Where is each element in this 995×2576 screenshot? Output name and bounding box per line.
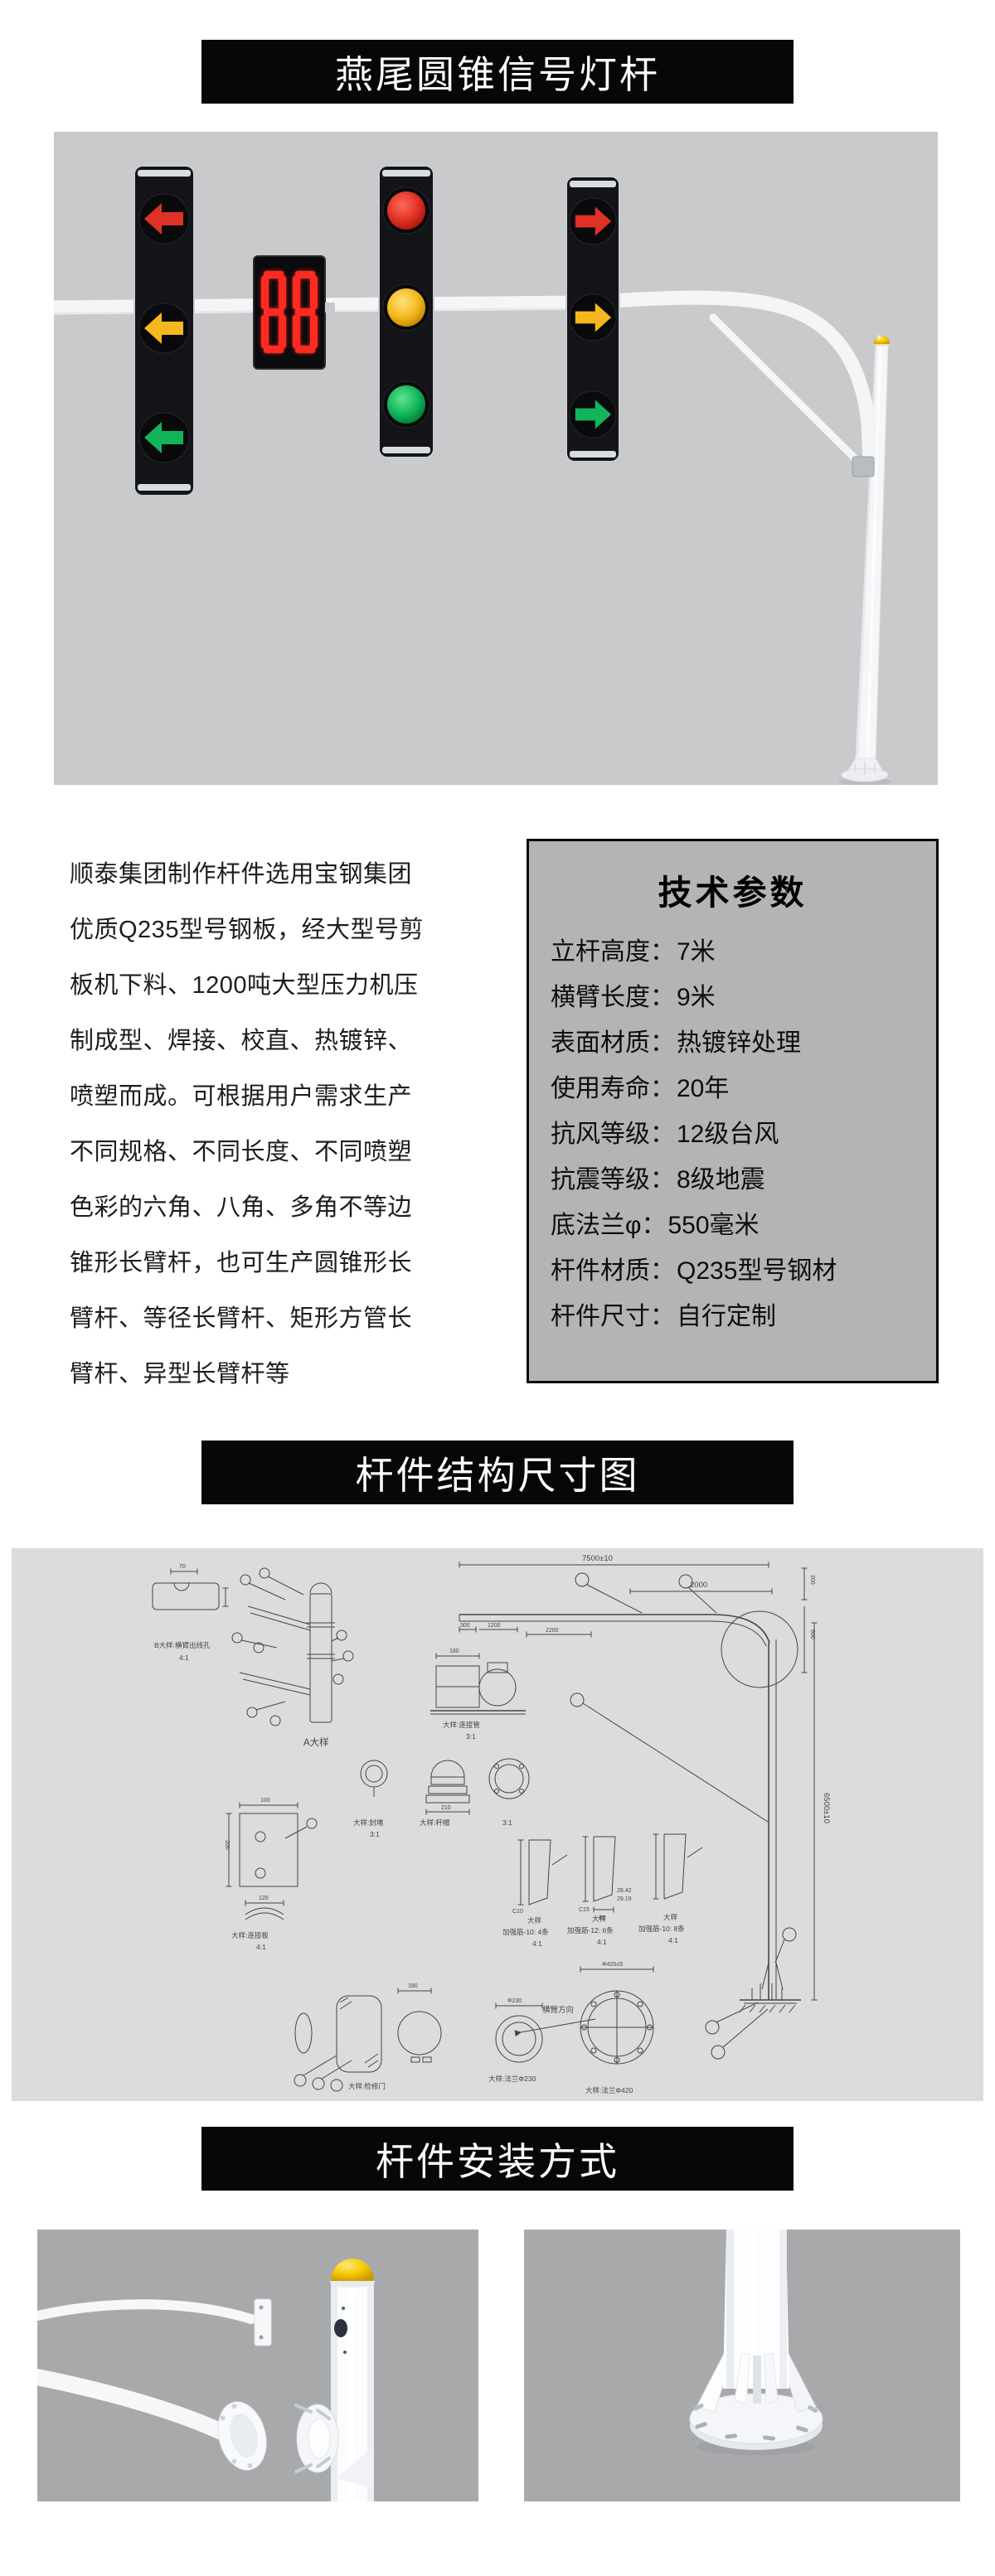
dim-1200: 1200 [488,1623,501,1629]
spec-label: 底法兰φ： [551,1212,666,1239]
banner-structure-title: 杆件结构尺寸图 [201,1441,794,1504]
label-arm-direction: 横臂方向 [542,2005,574,2015]
label-scale: 4:1 [597,1938,607,1946]
spec-label: 抗震等级： [551,1166,675,1194]
spec-value: 12级台风 [677,1121,779,1148]
install-photo-arm-svg [37,2230,478,2501]
label-scale: 4:1 [256,1943,266,1951]
install-photo-base [524,2230,960,2501]
intro-line: 优质Q235型号钢板，经大型号剪 [70,903,424,958]
intro-line: 喷塑而成。可根据用户需求生产 [70,1069,424,1125]
intro-line: 顺泰集团制作杆件选用宝钢集团 [70,847,424,903]
dim-200: 200 [809,1575,815,1585]
label-scale: 4:1 [668,1936,678,1944]
label-flange420: 大样:法兰Φ420 [585,2086,633,2094]
spec-label: 表面材质： [551,1029,675,1057]
spec-value: 550毫米 [667,1212,759,1239]
label-scale: 3:1 [370,1830,380,1838]
spec-label: 横臂长度： [551,984,675,1011]
label-b-detail: B大样:横臂出线孔 [154,1641,211,1649]
gusset-shadow [753,2356,761,2404]
product-photo-svg: 88 [54,132,938,785]
label-scale: 4:1 [179,1654,189,1662]
banner-structure-title-text: 杆件结构尺寸图 [356,1445,640,1500]
structure-drawing-svg: 7500±10 2000 300 1200 2200 200 [12,1548,983,2101]
spec-row-arm-length: 横臂长度：9米 [529,975,936,1020]
intro-line: 色彩的六角、八角、多角不等边 [70,1180,424,1236]
dim-70: 70 [179,1564,186,1570]
label-scale: 4:1 [532,1939,542,1948]
dim-210: 210 [441,1805,451,1811]
label-conn-tube: 大样:连接管 [443,1721,480,1729]
dim-120: 120 [259,1896,269,1901]
cad-door: 180 大样:检修门 [294,1983,441,2091]
label-scale: 3:1 [502,1818,512,1827]
dim-300: 300 [460,1623,470,1629]
label-rib2: 加强筋-12: 6条 [567,1926,614,1934]
dim-flange230: Φ230 [507,1998,522,2004]
intro-line: 臂杆、异型长臂杆等 [70,1347,424,1402]
product-photo: 88 [54,132,938,785]
cad-ribs: 80 C10 C15 28.42 29.19 大样 加强筋-10: 4条 4:1… [502,1834,702,1948]
intro-line: 制成型、焊接、校直、热镀锌、 [70,1014,424,1069]
label-a-detail: A大样 [303,1736,329,1748]
label-flange230: 大样:法兰Φ230 [488,2075,536,2083]
specs-box: 技术参数 立杆高度：7米 横臂长度：9米 表面材质：热镀锌处理 使用寿命：20年… [527,839,939,1383]
dim-100: 100 [260,1798,270,1804]
label-detail: 大样 [663,1913,678,1921]
arm-pole-bracket [852,457,874,477]
cad-conn-plate: 200 100 120 大样:连接板 4:1 [224,1798,317,1951]
label-cap: 大样:杆帽 [420,1818,449,1827]
spec-value: 7米 [677,938,716,966]
spec-label: 杆件材质： [551,1257,675,1285]
dim-height: 6500±10 [822,1793,831,1823]
label-detail: 大样 [527,1916,542,1925]
dim-200: 200 [224,1840,230,1850]
page: 燕尾圆锥信号灯杆 [0,0,995,2576]
traffic-light-right-arrows [566,177,619,462]
cad-conn-tube: 180 大样:连接管 3:1 [430,1649,526,1741]
banner-product-title: 燕尾圆锥信号灯杆 [201,40,794,104]
spec-row-pole-height: 立杆高度：7米 [529,929,936,975]
spec-value: 20年 [677,1075,729,1102]
label-detail: 大样 [592,1915,607,1923]
install-photo-base-svg [524,2230,960,2501]
intro-paragraph: 顺泰集团制作杆件选用宝钢集团 优质Q235型号钢板，经大型号剪 板机下料、120… [70,847,424,1402]
spec-label: 立杆高度： [551,938,675,966]
spec-row-material: 杆件材质：Q235型号钢材 [529,1248,936,1294]
label-door: 大样:检修门 [348,2082,386,2090]
pole-section [330,2259,375,2501]
traffic-light-circles [379,166,434,458]
spec-row-lifespan: 使用寿命：20年 [529,1066,936,1111]
spec-value: 自行定制 [677,1303,776,1330]
structure-drawing: 7500±10 2000 300 1200 2200 200 [12,1548,983,2101]
cad-flanges: 横臂方向 Φ420±5 大样:法兰Φ420 Φ230 大样:法兰Φ230 [488,1962,653,2094]
spec-label: 使用寿命： [551,1075,675,1102]
intro-line: 锥形长臂杆，也可生产圆锥形长 [70,1236,424,1291]
intro-line: 板机下料、1200吨大型压力机压 [70,958,424,1014]
traffic-light-left-arrows [134,166,194,496]
banner-install-title: 杆件安装方式 [201,2127,794,2191]
countdown-bracket [325,303,335,312]
dim-total-arm: 7500±10 [582,1554,613,1563]
amber-light [387,288,425,327]
cad-elevation: 7500±10 2000 300 1200 2200 200 [459,1554,831,2059]
red-light [387,191,425,230]
cad-a-detail: A大样 [232,1568,353,1748]
dim-180: 180 [408,1983,418,1989]
dim-2200: 2200 [546,1628,559,1634]
spec-value: 8级地震 [677,1166,765,1194]
cad-b-detail: 70 B大样:横臂出线孔 4:1 [153,1564,226,1662]
dim-2842: 28.42 [617,1888,632,1894]
spec-label: 杆件尺寸： [551,1303,675,1330]
label-plug: 大样:封堵 [353,1818,384,1827]
spec-row-surface: 表面材质：热镀锌处理 [529,1020,936,1066]
spec-value: 9米 [677,984,716,1011]
dim-flange420: Φ420±5 [602,1962,623,1968]
install-photo-arm [37,2230,478,2501]
spec-row-wind: 抗风等级：12级台风 [529,1111,936,1157]
spec-row-quake: 抗震等级：8级地震 [529,1157,936,1203]
mount-flange [296,2404,338,2472]
label-conn-plate: 大样:连接板 [231,1931,269,1939]
cad-mid-details: 大样:封堵 3:1 210 大样:杆帽 3:1 [353,1759,529,1838]
intro-line: 臂杆、等径长臂杆、矩形方管长 [70,1291,424,1347]
intro-line: 不同规格、不同长度、不同喷塑 [70,1125,424,1180]
label-scale: 3:1 [466,1732,476,1741]
cable-hole [334,2319,347,2337]
spec-value: Q235型号钢材 [677,1257,837,1285]
banner-install-title-text: 杆件安装方式 [376,2132,619,2186]
label-rib1: 加强筋-10: 4条 [502,1928,549,1936]
dim-180: 180 [449,1649,459,1654]
dim-c15: C15 [579,1907,590,1913]
green-light [387,385,425,424]
specs-title: 技术参数 [529,864,936,914]
label-rib3: 加强筋-10: 8条 [638,1925,685,1933]
spec-label: 抗风等级： [551,1121,675,1148]
dim-c10: C10 [512,1909,523,1915]
banner-product-title-text: 燕尾圆锥信号灯杆 [335,45,660,99]
countdown-display: 88 [254,256,335,369]
spec-row-flange: 底法兰φ：550毫米 [529,1203,936,1248]
dim-2919: 29.19 [617,1896,632,1902]
spec-value: 热镀锌处理 [677,1029,801,1057]
spec-row-size: 杆件尺寸：自行定制 [529,1294,936,1339]
